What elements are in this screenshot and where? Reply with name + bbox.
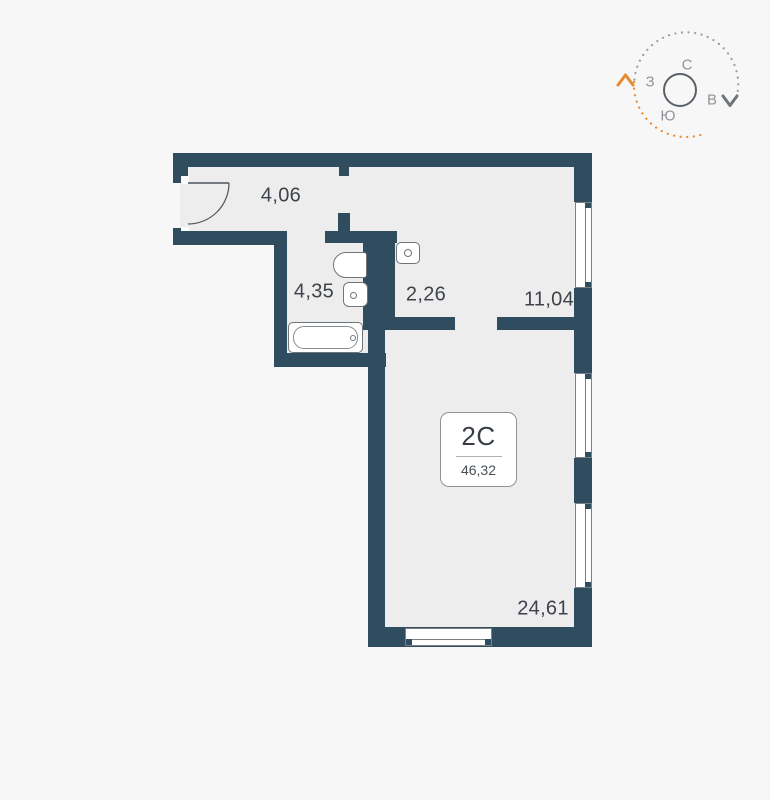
window-cap: [585, 282, 591, 287]
compass-north-label: С: [682, 57, 693, 74]
compass-east-label: В: [707, 92, 717, 109]
sink-icon: [343, 282, 368, 307]
room-area-label-corridor: 2,26: [406, 284, 446, 307]
floorplan-canvas: 4,06 4,35 2,26 11,04 24,61 2С 46,32 С З …: [0, 0, 770, 800]
room-area-label-living: 24,61: [517, 598, 569, 621]
window-cap: [585, 504, 591, 509]
compass-west-label: З: [645, 74, 654, 91]
faucet-dot: [350, 292, 357, 299]
washer-door-dot: [404, 249, 412, 257]
bathtub-icon: [288, 322, 363, 353]
window-cap: [585, 203, 591, 208]
window-cap: [585, 582, 591, 587]
balcony-window-icon: [405, 628, 492, 646]
compass: С З В Ю: [605, 15, 765, 165]
window-cap: [585, 374, 591, 379]
rotate-cw-arrow-icon[interactable]: [723, 96, 737, 106]
wall-separator-left: [380, 317, 455, 330]
wall-bath-left: [274, 231, 287, 367]
room-area-label-hallway: 4,06: [261, 185, 301, 208]
window-frame-line: [406, 639, 491, 640]
wall-right-seg1: [574, 167, 592, 202]
window-cap: [585, 452, 591, 457]
washing-machine-icon: [396, 242, 420, 264]
toilet-icon: [333, 252, 367, 278]
wall-main-left: [368, 325, 385, 647]
room-area-label-kitchen: 11,04: [524, 289, 574, 312]
wall-notch-top: [339, 167, 349, 176]
window-frame-line: [585, 504, 586, 587]
wall-hall-bottom: [173, 231, 287, 245]
bathtub-inner-rim: [293, 326, 358, 349]
compass-south-label: Ю: [660, 108, 675, 125]
window-cap: [485, 639, 491, 645]
wall-right-seg2: [574, 288, 592, 373]
apartment-badge: 2С 46,32: [440, 412, 517, 487]
window-frame-line: [585, 203, 586, 287]
badge-divider: [456, 456, 502, 457]
apartment-total-area-label: 46,32: [461, 462, 496, 478]
wall-stub-mid: [338, 213, 350, 231]
floor-fill-top-band: [180, 160, 584, 238]
entry-door-arc-icon: [185, 180, 235, 230]
window-cap: [406, 639, 412, 645]
rotate-ccw-arrow-icon[interactable]: [618, 75, 633, 85]
wall-right-seg3: [574, 458, 592, 503]
compass-center-circle: [664, 74, 696, 106]
apartment-type-label: 2С: [461, 421, 495, 452]
wall-top: [173, 153, 592, 167]
window-icon: [575, 373, 592, 458]
window-icon: [575, 202, 592, 288]
wall-bath-right: [363, 231, 395, 330]
room-area-label-bathroom: 4,35: [294, 281, 334, 304]
drain-dot: [350, 335, 356, 341]
window-frame-line: [585, 374, 586, 457]
window-icon: [575, 503, 592, 588]
